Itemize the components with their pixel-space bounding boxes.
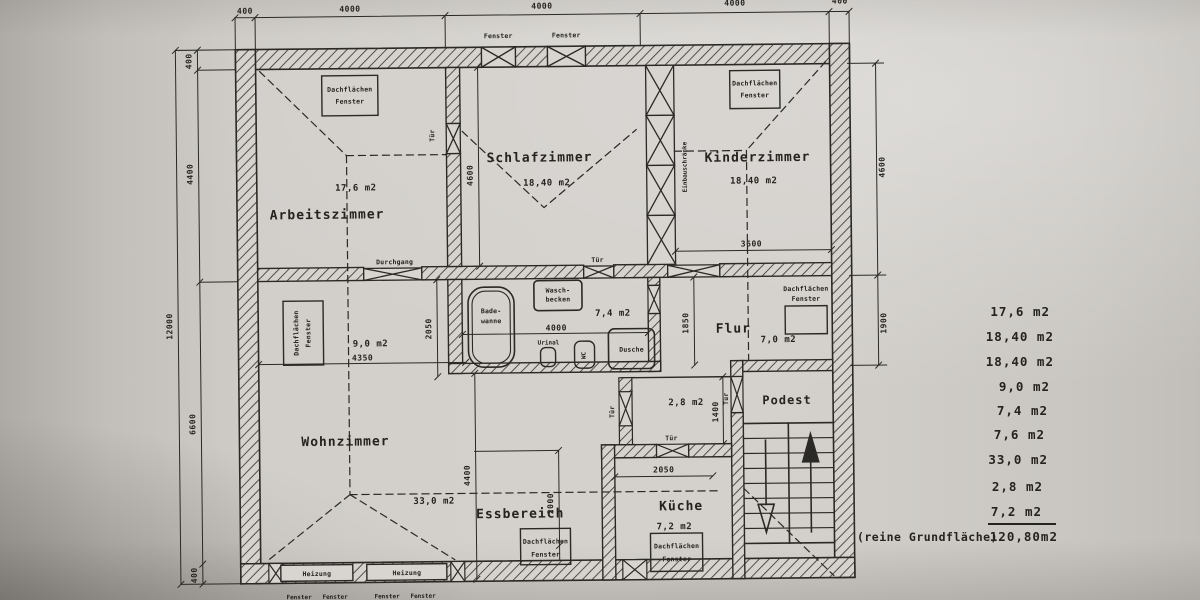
radiator-2: Heizung	[367, 564, 447, 581]
fenster-label-top-2: Fenster	[552, 31, 581, 39]
door-kueche	[657, 444, 689, 457]
svg-text:1900: 1900	[879, 312, 888, 333]
dim-flur-label: 1850	[681, 312, 690, 333]
window-bottom-2	[451, 561, 465, 581]
radiator-1: Heizung	[281, 565, 353, 582]
svg-text:Dachflächen: Dachflächen	[732, 79, 777, 87]
tuer-label-arbeitszimmer: Tür	[428, 129, 436, 141]
dachfenster-label-flur-2: Fenster	[792, 295, 821, 303]
badewanne-label-2: wanne	[481, 317, 502, 325]
kueche-area: 7,2 m2	[657, 522, 693, 532]
svg-text:6600: 6600	[188, 414, 197, 435]
dim-kinderzimmer-label: 3600	[741, 239, 762, 248]
fenster-label-bottom-1: Fenster	[286, 594, 312, 600]
fenster-label-bottom-2: Fenster	[322, 594, 348, 600]
svg-text:Dachflächen: Dachflächen	[523, 537, 568, 545]
window-bad	[648, 285, 660, 313]
schlafzimmer-label: Schlafzimmer	[486, 150, 592, 166]
area-list-entry: 9,0 m2	[999, 379, 1050, 394]
wohnbereich-area: 9,0 m2	[353, 339, 389, 349]
svg-text:12000: 12000	[165, 313, 174, 340]
area-list-total-value: 120,80m2	[990, 529, 1058, 544]
abstellraum-area: 2,8 m2	[668, 398, 704, 408]
podest-label: Podest	[762, 393, 812, 408]
flur-label: Flur	[716, 321, 751, 336]
dim-left: 12000 400 4400 6600 400	[162, 47, 241, 588]
kueche-label: Küche	[659, 499, 703, 514]
tuer-label-kueche: Tür	[665, 434, 677, 442]
floor-plan-drawing: Fenster Fenster Durchgang Tür	[0, 0, 1200, 600]
kinderzimmer-label: Kinderzimmer	[704, 150, 810, 166]
waschbecken-label-2: becken	[546, 295, 571, 303]
svg-text:Fenster: Fenster	[531, 550, 560, 558]
area-list-entry: 17,6 m2	[990, 304, 1050, 319]
dim-bad-breite-label: 4000	[546, 323, 567, 332]
dim-wohnzimmer-label: 4400	[463, 465, 472, 486]
svg-text:Dachflächen: Dachflächen	[292, 311, 300, 356]
area-list-total-label: (reine Grundfläche)	[857, 530, 998, 544]
tuer-label-abstellraum: Tür	[608, 406, 616, 418]
dim-top: 400 4000 4000 4000 400	[232, 0, 852, 50]
fenster-label-top-1: Fenster	[484, 32, 513, 40]
dim-essbereich-label: 2000	[546, 493, 555, 514]
dim-links-hoehe-label: 2050	[424, 318, 433, 339]
arbeitszimmer-area: 17,6 m2	[335, 183, 377, 193]
svg-text:Fenster: Fenster	[740, 91, 769, 99]
schlafzimmer-area: 18,40 m2	[523, 178, 570, 188]
svg-text:4000: 4000	[724, 0, 745, 8]
tuer-label-bad: Tür	[591, 256, 603, 264]
fenster-label-bottom-3: Fenster	[374, 593, 400, 600]
window-top-1	[481, 47, 515, 67]
fenster-label-bottom-4: Fenster	[410, 593, 436, 600]
svg-text:400: 400	[184, 53, 193, 69]
wc-label: WC	[581, 352, 588, 360]
area-list-entry: 7,4 m2	[997, 403, 1048, 418]
svg-text:Fenster: Fenster	[335, 97, 364, 105]
svg-text:4000: 4000	[339, 4, 360, 13]
window-top-2	[547, 46, 585, 66]
svg-text:Fenster: Fenster	[304, 319, 312, 348]
svg-text:Dachflächen: Dachflächen	[654, 542, 699, 550]
dim-abstellraum-label: 1400	[711, 401, 720, 422]
area-list-entry: 2,8 m2	[992, 479, 1043, 494]
area-list-entry: 7,6 m2	[994, 427, 1045, 442]
area-list-entry: 18,40 m2	[986, 329, 1054, 344]
einbauschraenke-label: Einbauschränke	[681, 141, 689, 192]
dim-kueche-label: 2050	[653, 465, 674, 474]
svg-text:4000: 4000	[531, 1, 552, 10]
dusche-label: Dusche	[619, 346, 644, 354]
svg-text:Dachflächen: Dachflächen	[327, 85, 372, 93]
door-bad	[584, 266, 614, 278]
dim-schlafzimmer-label: 4600	[466, 165, 475, 186]
svg-text:Heizung: Heizung	[302, 570, 331, 578]
scanned-floorplan-page: Fenster Fenster Durchgang Tür	[0, 0, 1200, 600]
kinderzimmer-area: 18,40 m2	[730, 176, 777, 186]
svg-text:4400: 4400	[186, 164, 195, 185]
door-arbeitszimmer	[446, 123, 460, 153]
svg-text:400: 400	[190, 567, 199, 583]
area-list-entry: 18,40 m2	[986, 354, 1054, 369]
svg-text:Heizung: Heizung	[392, 569, 421, 577]
area-list-entry: 33,0 m2	[988, 452, 1048, 467]
arbeitszimmer-label: Arbeitszimmer	[270, 207, 385, 223]
dim-links-breite-label: 4350	[352, 353, 373, 362]
svg-text:4600: 4600	[878, 156, 887, 177]
wohnzimmer-label: Wohnzimmer	[301, 434, 389, 450]
area-list: 17,6 m2 18,40 m2 18,40 m2 9,0 m2 7,4 m2 …	[857, 304, 1058, 544]
svg-text:400: 400	[237, 7, 253, 16]
opening-durchgang	[364, 268, 422, 281]
urinal-label: Urinal	[538, 339, 560, 346]
einbauschraenke-column	[646, 65, 676, 264]
svg-text:Fenster: Fenster	[662, 555, 691, 563]
bad-area: 7,4 m2	[595, 309, 631, 319]
badewanne-label-1: Bade-	[481, 307, 502, 315]
flur-area: 7,0 m2	[761, 335, 797, 345]
opening-flur	[668, 265, 720, 278]
wall-arbeitszimmer-schlafzimmer	[446, 67, 462, 266]
dachfenster-label-flur-1: Dachflächen	[783, 285, 828, 293]
waschbecken-label-1: Wasch-	[546, 286, 571, 294]
durchgang-label: Durchgang	[376, 258, 413, 266]
window-bottom-3	[623, 560, 647, 580]
svg-text:400: 400	[832, 0, 848, 6]
door-podest	[731, 377, 743, 413]
door-abstellraum	[619, 392, 632, 426]
area-list-entry: 7,2 m2	[991, 504, 1042, 519]
wohnzimmer-area: 33,0 m2	[413, 497, 455, 507]
dim-right: 4600 1900	[848, 60, 889, 368]
